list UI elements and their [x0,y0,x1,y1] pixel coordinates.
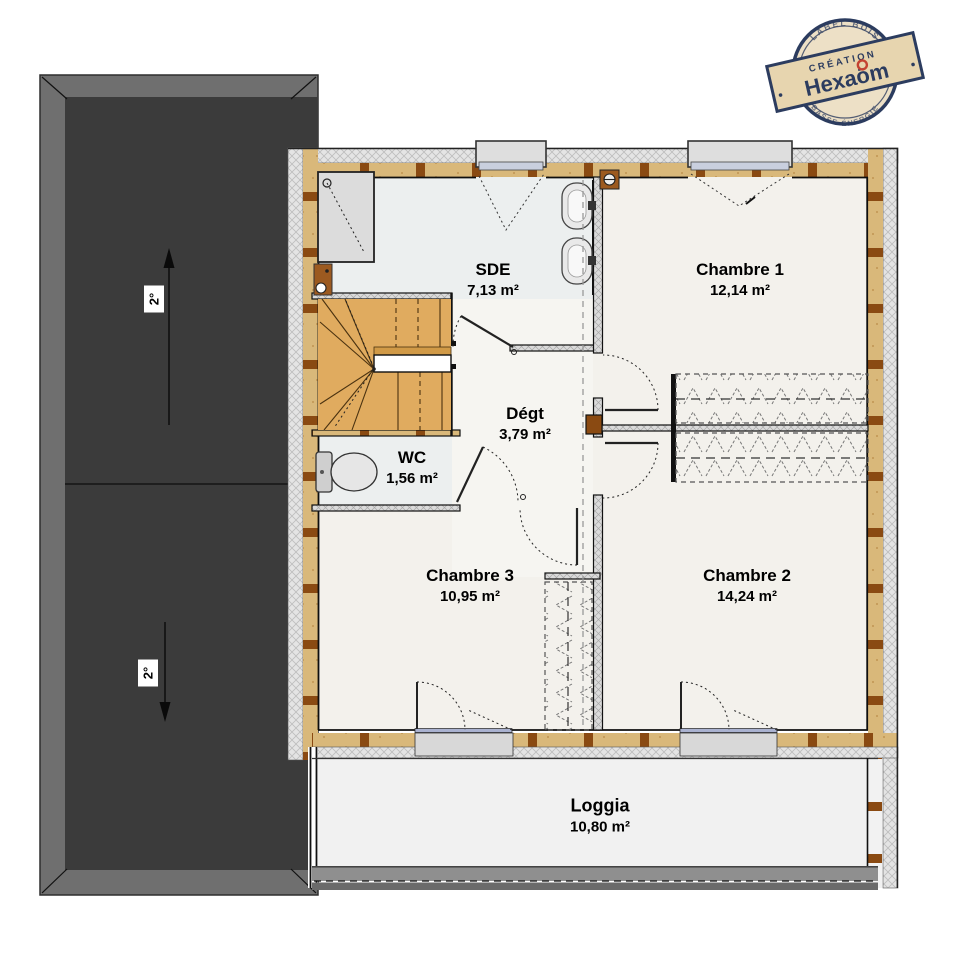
door-jamb-block [586,415,602,434]
vent-icon [600,170,619,189]
room-label-chambre3: Chambre 3 10,95 m² [426,565,514,607]
room-name: Chambre 1 [696,259,784,281]
hexaom-stamp: LABEL BOIS BASSE ÉNERGIE CRÉATION Hexaōm [767,18,924,128]
toilet-icon [316,452,377,492]
room-name: Chambre 2 [703,565,791,587]
floor-plan-page: LABEL BOIS BASSE ÉNERGIE CRÉATION Hexaōm… [0,0,960,956]
room-label-chambre1: Chambre 1 12,14 m² [696,259,784,301]
staircase [318,299,451,430]
room-name: Chambre 3 [426,565,514,587]
room-area: 7,13 m² [467,281,519,301]
water-heater-icon [314,264,332,295]
floor-plan-drawing: LABEL BOIS BASSE ÉNERGIE CRÉATION Hexaōm [0,0,960,956]
roof-slope-label-lower: 2° [138,660,158,687]
slope-value: 2° [141,667,156,679]
room-name: SDE [467,259,519,281]
shower-icon [318,172,374,262]
loggia-railing-top [312,866,878,881]
room-label-wc: WC 1,56 m² [386,447,438,489]
roof-panel [40,75,318,895]
roof-slope-label-upper: 2° [144,286,164,313]
room-area: 3,79 m² [499,425,551,445]
room-area: 10,95 m² [426,587,514,607]
room-label-degt: Dégt 3,79 m² [499,403,551,445]
room-area: 12,14 m² [696,281,784,301]
room-label-loggia: Loggia 10,80 m² [570,795,630,838]
stair-landing-edge [374,347,451,355]
room-label-sde: SDE 7,13 m² [467,259,519,301]
room-area: 1,56 m² [386,469,438,489]
room-name: Loggia [570,795,630,818]
loggia-railing-bottom [312,883,878,891]
room-area: 10,80 m² [570,818,630,838]
room-area: 14,24 m² [703,587,791,607]
room-name: WC [386,447,438,469]
slope-value: 2° [147,293,162,305]
room-label-chambre2: Chambre 2 14,24 m² [703,565,791,607]
room-name: Dégt [499,403,551,425]
stair-landing [374,355,451,372]
